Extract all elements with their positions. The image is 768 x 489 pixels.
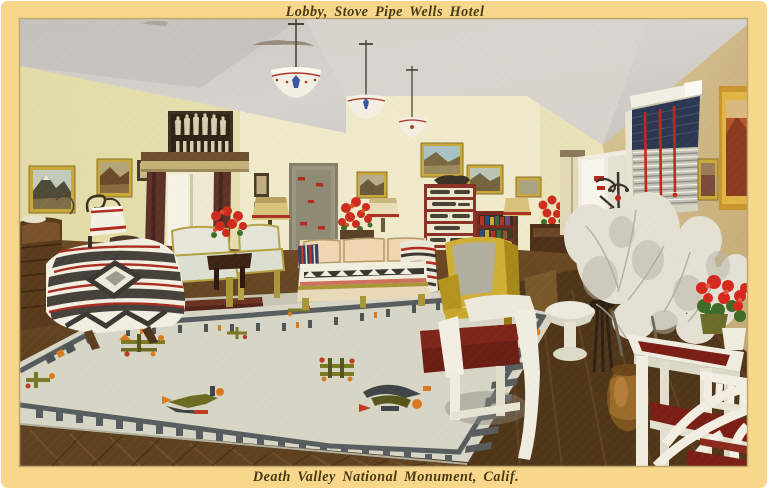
svg-text:Lobby, Stove Pipe Wells Hotel: Lobby, Stove Pipe Wells Hotel [285, 4, 485, 20]
svg-text:Death Valley National Monument: Death Valley National Monument, Calif. [252, 469, 519, 485]
